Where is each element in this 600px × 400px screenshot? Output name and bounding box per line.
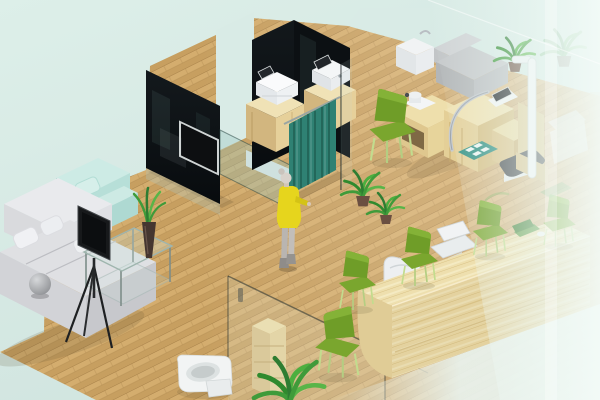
scene-render [0,0,600,400]
ball-lamp [29,273,51,299]
yellow-dress [277,186,301,228]
isometric-interior [0,0,600,400]
glass-pane-edge [341,58,352,190]
toilet [178,355,233,397]
